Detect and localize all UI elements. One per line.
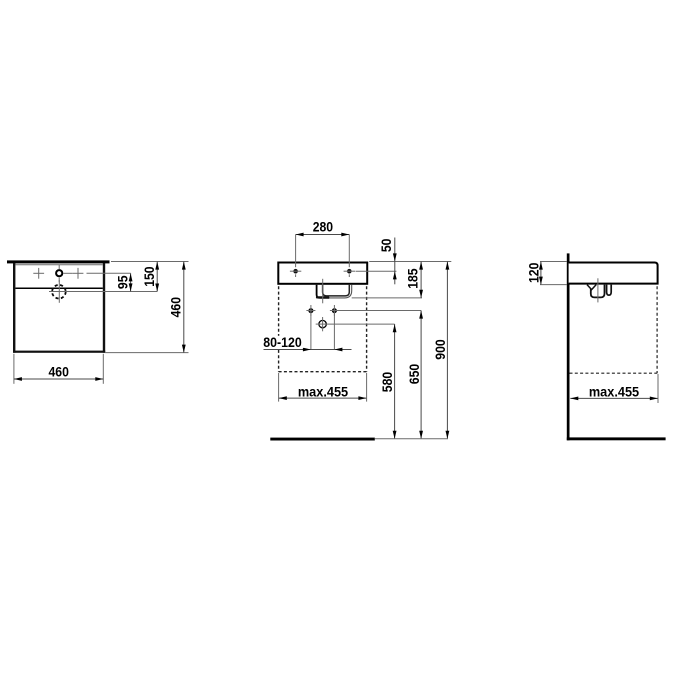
svg-text:900: 900 <box>432 339 448 360</box>
svg-text:280: 280 <box>313 219 334 235</box>
svg-text:650: 650 <box>406 364 422 385</box>
svg-text:50: 50 <box>378 238 394 252</box>
svg-text:80-120: 80-120 <box>263 334 302 350</box>
svg-text:185: 185 <box>405 268 421 289</box>
svg-text:95: 95 <box>115 275 131 289</box>
svg-text:150: 150 <box>141 266 157 287</box>
svg-text:460: 460 <box>49 364 70 380</box>
svg-text:580: 580 <box>379 372 395 393</box>
svg-text:120: 120 <box>525 262 541 283</box>
svg-text:460: 460 <box>168 297 184 318</box>
svg-text:max.455: max.455 <box>298 383 348 399</box>
svg-text:max.455: max.455 <box>589 383 639 399</box>
